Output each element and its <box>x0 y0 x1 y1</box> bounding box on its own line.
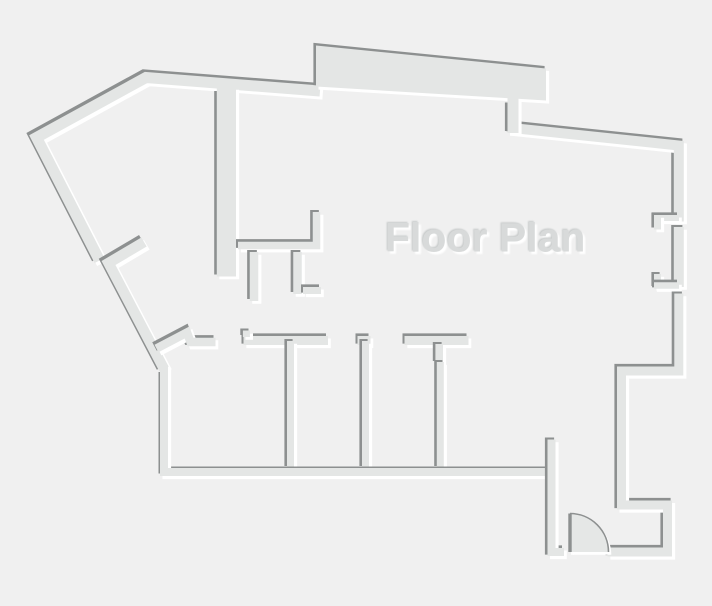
svg-text:Floor Plan: Floor Plan <box>385 215 585 261</box>
